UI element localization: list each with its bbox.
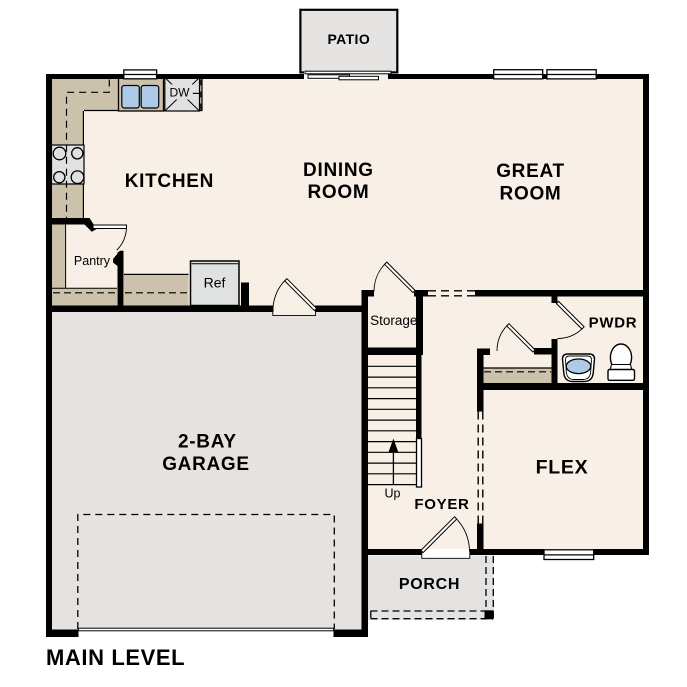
svg-text:PWDR: PWDR <box>589 315 638 332</box>
svg-text:KITCHEN: KITCHEN <box>125 171 214 192</box>
svg-text:DINING: DINING <box>303 160 374 181</box>
svg-text:FLEX: FLEX <box>536 456 589 478</box>
svg-text:ROOM: ROOM <box>307 182 369 203</box>
svg-text:FOYER: FOYER <box>414 496 469 513</box>
svg-text:2-BAY: 2-BAY <box>178 432 237 453</box>
svg-text:Pantry: Pantry <box>74 254 111 268</box>
svg-text:PORCH: PORCH <box>399 576 460 593</box>
svg-text:ROOM: ROOM <box>500 184 562 205</box>
svg-text:PATIO: PATIO <box>327 31 370 47</box>
svg-text:Storage: Storage <box>370 313 417 328</box>
svg-text:Ref: Ref <box>204 275 226 291</box>
svg-text:GARAGE: GARAGE <box>162 454 250 475</box>
svg-text:MAIN LEVEL: MAIN LEVEL <box>46 645 185 670</box>
svg-text:DW: DW <box>170 85 191 99</box>
svg-text:Up: Up <box>385 487 401 501</box>
svg-text:GREAT: GREAT <box>496 161 565 182</box>
